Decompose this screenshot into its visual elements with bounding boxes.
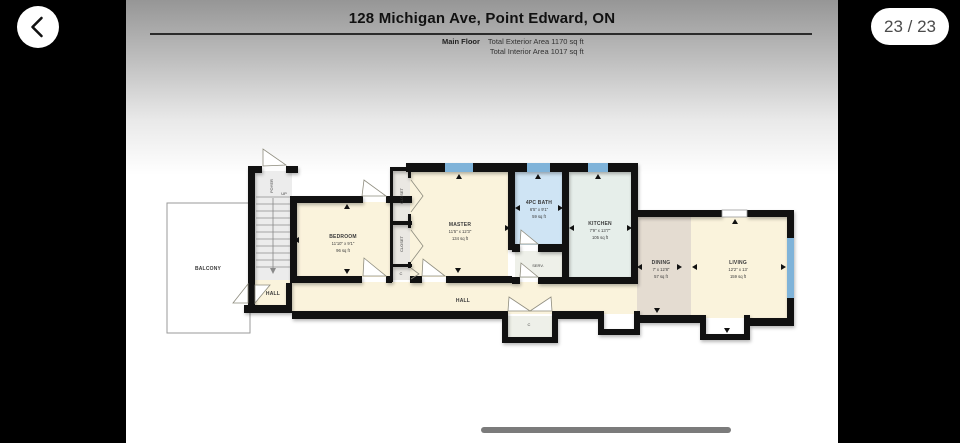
label-foyer: FOYER <box>269 179 274 193</box>
window-living-right <box>787 238 794 298</box>
label-bath-dims: 6'5" x 9'1" <box>530 207 549 212</box>
image-viewer: 128 Michigan Ave, Point Edward, ON Main … <box>0 0 960 443</box>
label-master-area: 134 sq ft <box>452 236 469 241</box>
back-button[interactable] <box>17 6 59 48</box>
room-hall-closet <box>508 316 552 338</box>
label-kitchen: KITCHEN <box>588 221 612 227</box>
window-master <box>445 163 473 172</box>
label-serv: SERV. <box>532 263 544 268</box>
chevron-left-icon <box>17 6 59 48</box>
label-bath-area: 59 sq ft <box>532 214 547 219</box>
label-dining-dims: 7' x 12'8" <box>653 267 670 272</box>
label-dining-area: 57 sq ft <box>654 274 669 279</box>
label-kitchen-dims: 7'9" x 13'7" <box>590 228 611 233</box>
label-closet-mid: CLOSET <box>399 235 404 252</box>
page-counter: 23 / 23 <box>871 8 949 45</box>
floorplan-drawing: BALCONY FOYER UP HALL HALL BEDROOM 11'10… <box>0 0 960 443</box>
label-hall-main: HALL <box>456 298 470 304</box>
window-living-top <box>722 210 747 217</box>
label-living-area: 159 sq ft <box>730 274 747 279</box>
label-master: MASTER <box>449 222 472 228</box>
label-living: LIVING <box>729 260 747 266</box>
window-bath <box>527 163 550 172</box>
label-master-dims: 11'5" x 12'3" <box>449 229 472 234</box>
label-bedroom: BEDROOM <box>329 234 357 240</box>
label-closet-small: C <box>400 271 403 276</box>
label-living-dims: 12'2" x 13' <box>728 267 747 272</box>
label-hall-closet: C <box>528 322 531 327</box>
label-hall-left: HALL <box>266 291 280 297</box>
label-bedroom-dims: 11'10" x 9'1" <box>332 241 355 246</box>
label-closet-top: CLOSET <box>399 187 404 204</box>
label-balcony: BALCONY <box>195 266 222 272</box>
label-up: UP <box>281 191 287 196</box>
label-bedroom-area: 96 sq ft <box>336 248 351 253</box>
label-bath: 4PC BATH <box>526 200 552 206</box>
label-dining: DINING <box>652 260 671 266</box>
window-kitchen <box>588 163 608 172</box>
label-kitchen-area: 105 sq ft <box>592 235 609 240</box>
